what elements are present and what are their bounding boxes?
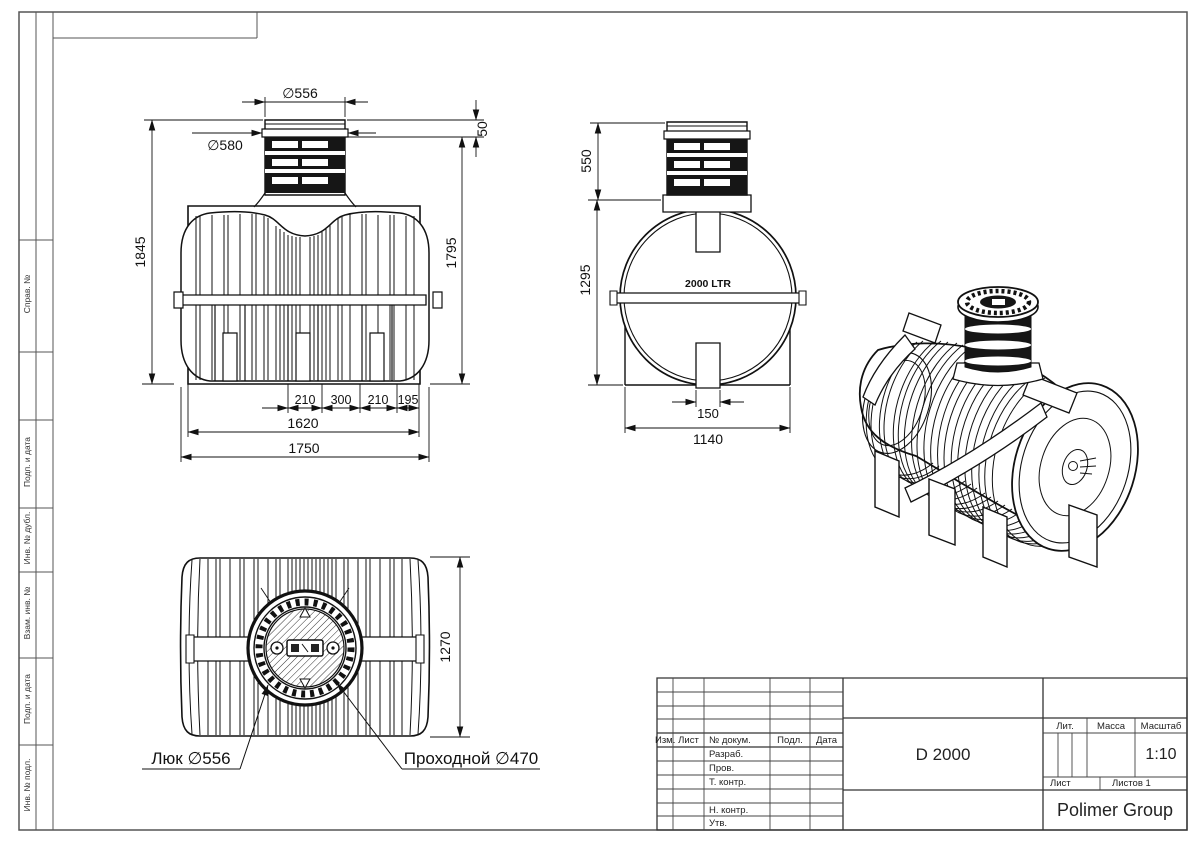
iso-neck xyxy=(953,287,1043,386)
isometric-view-drawing xyxy=(845,255,1175,577)
dim-550: 550 xyxy=(578,149,594,173)
tb-col-sign: Подл. xyxy=(770,735,810,746)
tb-col-doc: № докум. xyxy=(709,735,751,746)
callout-pass-label: Проходной ∅470 xyxy=(404,749,538,768)
margin-label-sprav: Справ. № xyxy=(22,234,32,354)
dim-210b: 210 xyxy=(368,393,389,407)
tb-sheets-label: Листов 1 xyxy=(1112,778,1151,789)
dim-1620: 1620 xyxy=(287,415,318,431)
front-view-drawing: ∅556 ∅580 50 1845 1795 210 300 210 195 1… xyxy=(130,85,492,477)
tb-row-tkontr: Т. контр. xyxy=(709,777,746,788)
callout-hatch-label: Люк ∅556 xyxy=(151,749,230,768)
side-view-drawing: 2000 LTR 550 1295 150 1140 xyxy=(560,95,830,460)
dim-dia580: ∅580 xyxy=(207,137,243,153)
dim-1795: 1795 xyxy=(443,237,459,268)
dim-dia556: ∅556 xyxy=(282,85,318,101)
dim-195: 195 xyxy=(398,393,419,407)
tb-lit-label: Лит. xyxy=(1043,721,1087,732)
tb-row-nkontr: Н. контр. xyxy=(709,805,748,816)
volume-label: 2000 LTR xyxy=(685,278,731,290)
dim-300: 300 xyxy=(331,393,352,407)
dim-1750: 1750 xyxy=(288,440,319,456)
dim-1270: 1270 xyxy=(437,631,453,662)
tb-row-prov: Пров. xyxy=(709,763,734,774)
dim-150: 150 xyxy=(697,406,719,421)
tb-designation: D 2000 xyxy=(843,745,1043,765)
margin-label-inv-podl: Инв. № подл. xyxy=(22,725,32,845)
manhole-hatch xyxy=(247,590,363,706)
tb-row-razrab: Разраб. xyxy=(709,749,743,760)
tb-scale-label: Масштаб xyxy=(1135,721,1187,732)
top-view-drawing: 1270 Люк ∅556 Проходной ∅470 xyxy=(140,545,560,785)
dim-1845: 1845 xyxy=(132,236,148,267)
dim-210a: 210 xyxy=(295,393,316,407)
front-neck xyxy=(254,120,356,207)
tb-col-list: Лист xyxy=(673,735,704,746)
drawing-sheet: ∅556 ∅580 50 1845 1795 210 300 210 195 1… xyxy=(0,0,1200,845)
dim-50: 50 xyxy=(474,121,490,137)
tb-company: Polimer Group xyxy=(1043,800,1187,821)
side-neck xyxy=(663,122,751,212)
tb-row-utv: Утв. xyxy=(709,818,727,829)
tb-col-date: Дата xyxy=(810,735,843,746)
tb-mass-label: Масса xyxy=(1087,721,1135,732)
tb-col-izm: Изм. xyxy=(655,735,675,746)
dim-1140: 1140 xyxy=(693,431,723,447)
tb-scale-value: 1:10 xyxy=(1135,746,1187,764)
tb-sheet-label: Лист xyxy=(1050,778,1071,789)
dim-1295: 1295 xyxy=(577,264,593,295)
